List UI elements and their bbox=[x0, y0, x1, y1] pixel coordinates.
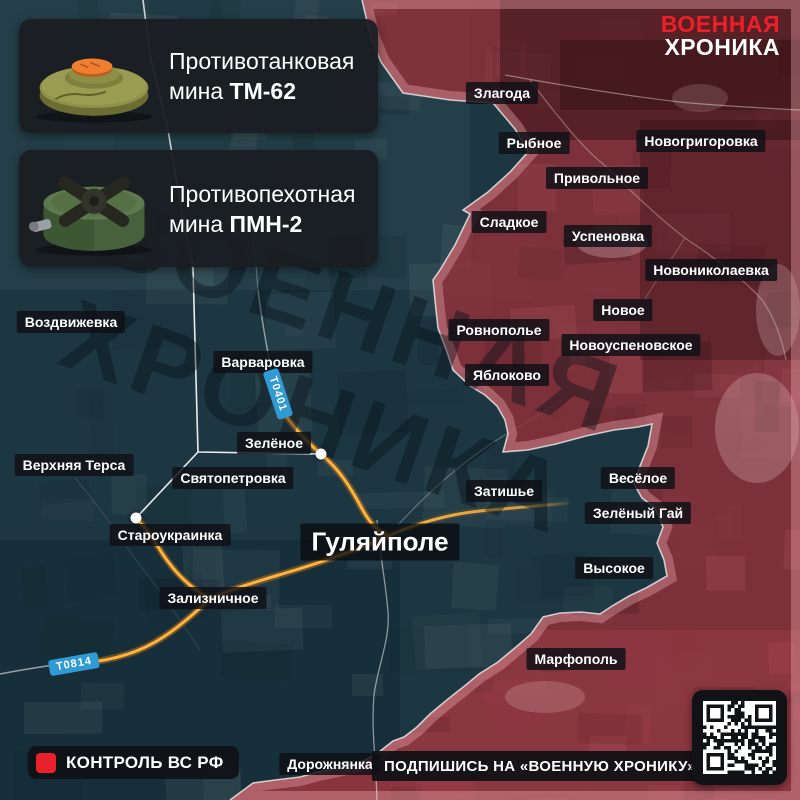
legend-control-vs-rf: КОНТРОЛЬ ВС РФ bbox=[28, 746, 239, 779]
card-title-pmn2: Противопехотная мина ПМН-2 bbox=[169, 179, 364, 239]
war-map-infographic: ВОЕННАЯ ХРОНИКА ЗлагодаРыбноеНовогригоро… bbox=[0, 0, 800, 800]
logo-line-2: ХРОНИКА bbox=[661, 36, 780, 59]
place-label-высокое: Высокое bbox=[575, 557, 653, 579]
place-label-рыбное: Рыбное bbox=[499, 132, 570, 154]
place-label-зализничное: Зализничное bbox=[160, 587, 267, 609]
place-label-ровнополье: Ровнополье bbox=[448, 319, 549, 341]
place-label-варваровка: Варваровка bbox=[213, 351, 312, 373]
subscribe-banner[interactable]: ПОДПИШИСЬ НА «ВОЕННУЮ ХРОНИКУ» bbox=[372, 751, 708, 781]
road-sign-т0401: Т0401 bbox=[263, 368, 294, 421]
place-label-затишье: Затишье bbox=[466, 480, 542, 502]
place-label-новоуспеновское: Новоуспеновское bbox=[561, 334, 700, 356]
city-label-гуляйполе: Гуляйполе bbox=[300, 524, 459, 561]
qr-code[interactable] bbox=[692, 690, 787, 785]
info-card-pmn2: Противопехотная мина ПМН-2 bbox=[19, 150, 378, 267]
anti-personnel-mine-pmn2-icon bbox=[19, 159, 169, 259]
place-label-привольное: Привольное bbox=[546, 167, 648, 189]
place-label-весёлое: Весёлое bbox=[601, 467, 675, 489]
marker-staroukrainka bbox=[131, 513, 142, 524]
anti-tank-mine-tm62-icon bbox=[19, 26, 169, 126]
place-label-дорожнянка: Дорожнянка bbox=[279, 753, 380, 775]
place-label-святопетровка: Святопетровка bbox=[172, 467, 293, 489]
channel-logo: ВОЕННАЯ ХРОНИКА bbox=[661, 13, 780, 59]
place-label-сладкое: Сладкое bbox=[472, 211, 547, 233]
legend-label: КОНТРОЛЬ ВС РФ bbox=[66, 753, 224, 773]
subscribe-label: ПОДПИШИСЬ НА «ВОЕННУЮ ХРОНИКУ» bbox=[384, 758, 696, 775]
place-label-новое: Новое bbox=[593, 299, 652, 321]
road-sign-т0814: Т0814 bbox=[48, 652, 100, 676]
marker-zelyonoe bbox=[316, 449, 327, 460]
card-title-tm62: Противотанковая мина ТМ-62 bbox=[169, 46, 362, 106]
place-label-староукраинка: Староукраинка bbox=[110, 524, 231, 546]
info-card-tm62: Противотанковая мина ТМ-62 bbox=[19, 19, 378, 133]
place-label-воздвижевка: Воздвижевка bbox=[17, 311, 125, 333]
place-label-зелёное: Зелёное bbox=[237, 432, 311, 454]
logo-line-1: ВОЕННАЯ bbox=[661, 13, 780, 36]
qr-pattern bbox=[703, 701, 776, 774]
legend-red-swatch bbox=[36, 753, 56, 773]
place-label-новониколаевка: Новониколаевка bbox=[645, 259, 777, 281]
place-label-яблоково: Яблоково bbox=[465, 364, 549, 386]
place-label-злагода: Злагода bbox=[466, 82, 538, 104]
place-label-успеновка: Успеновка bbox=[564, 225, 652, 247]
place-label-новогригоровка: Новогригоровка bbox=[636, 130, 765, 152]
place-label-марфополь: Марфополь bbox=[527, 648, 626, 670]
place-label-зелёный-гай: Зелёный Гай bbox=[585, 502, 691, 524]
place-label-верхняя-терса: Верхняя Терса bbox=[15, 454, 134, 476]
